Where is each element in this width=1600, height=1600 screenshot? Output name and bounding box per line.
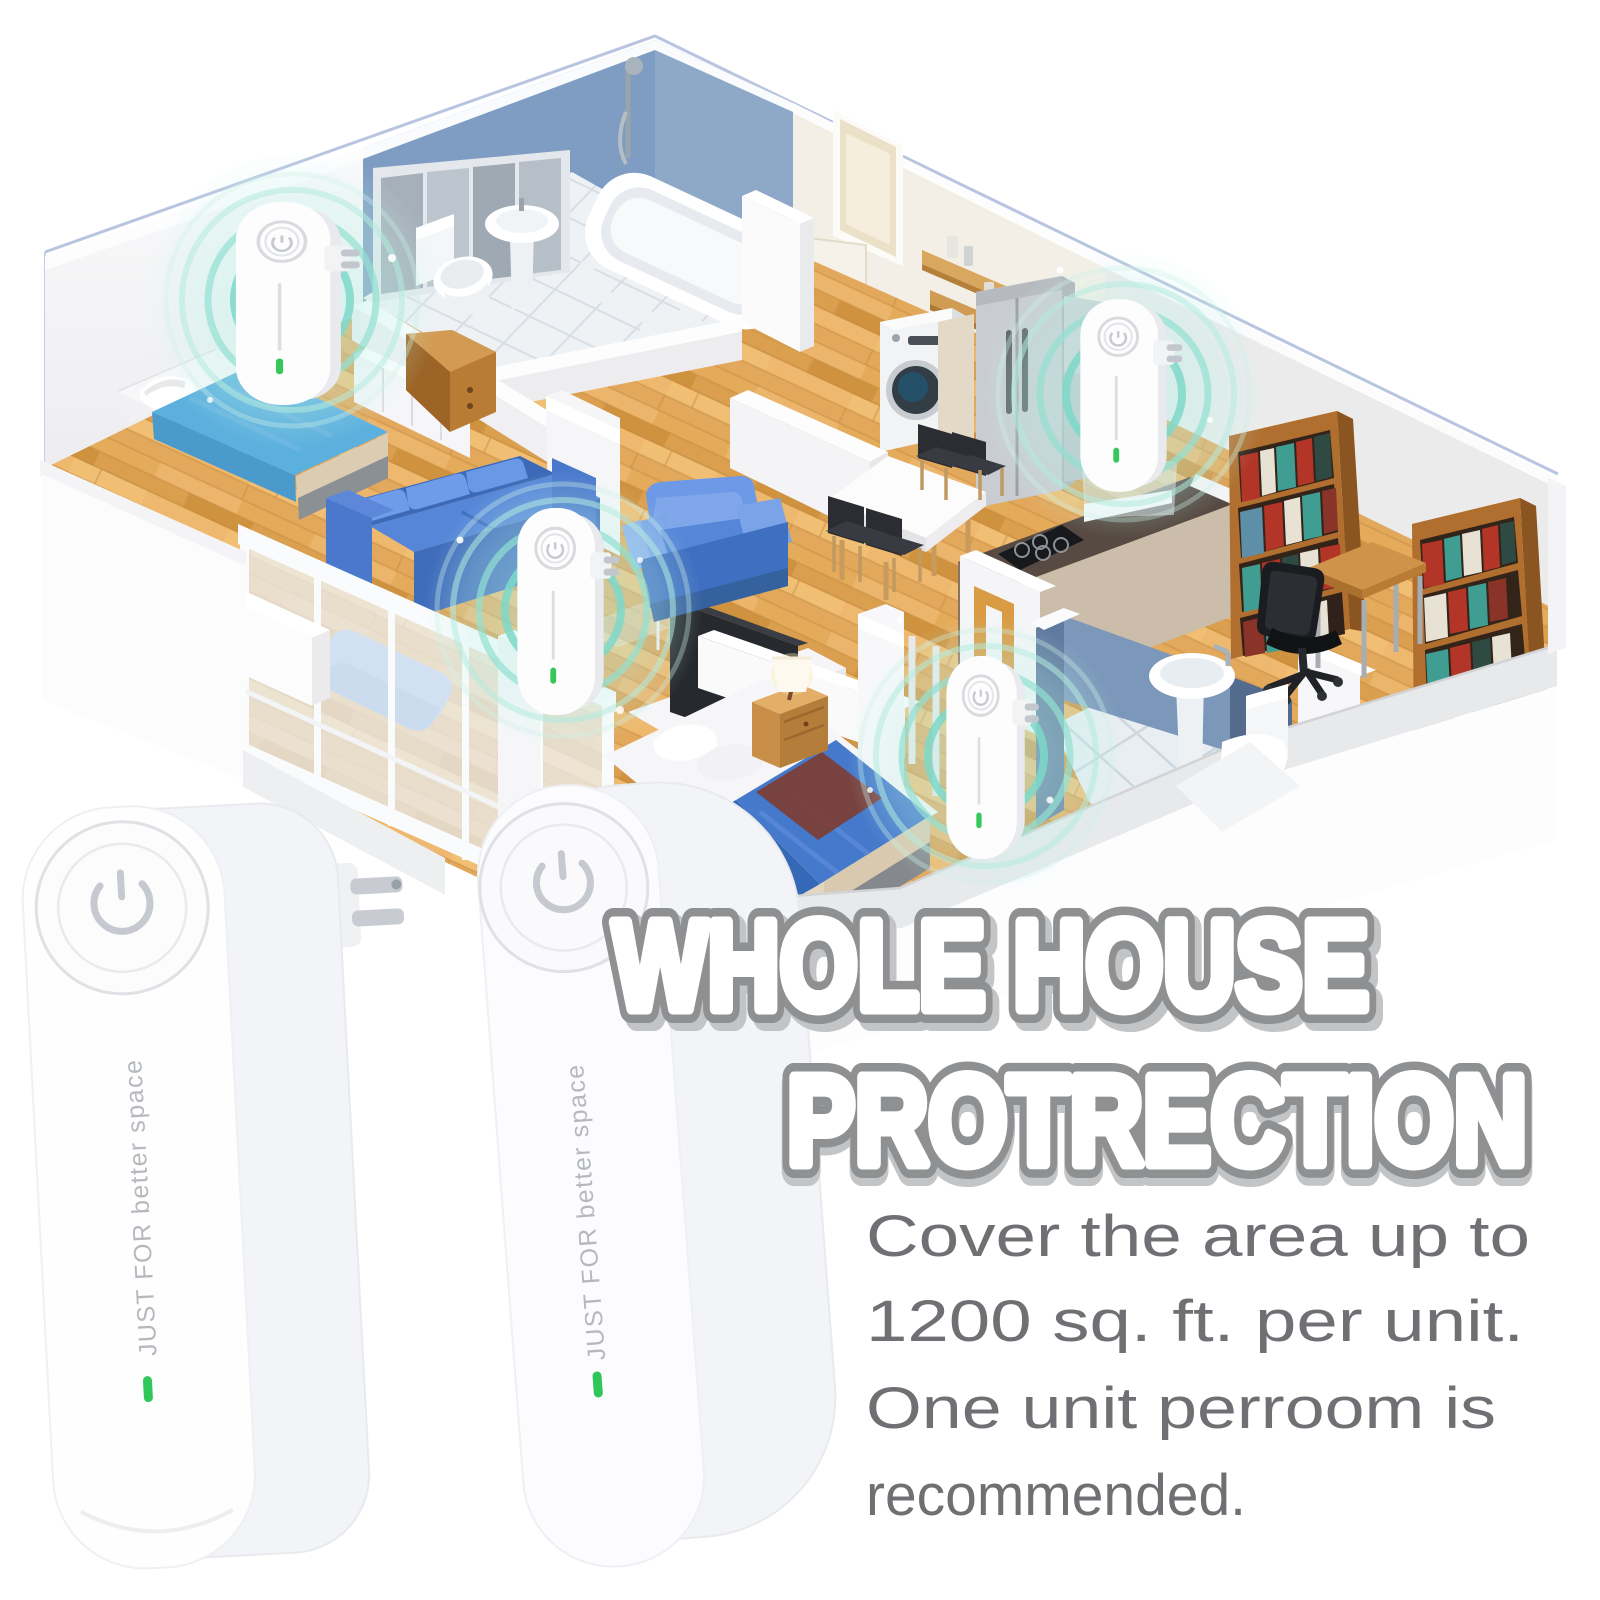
svg-text:One unit perroom is: One unit perroom is	[866, 1376, 1496, 1441]
svg-text:recommended.: recommended.	[866, 1463, 1246, 1528]
svg-text:1200 sq. ft. per unit.: 1200 sq. ft. per unit.	[866, 1289, 1524, 1354]
svg-text:PROTRECTION: PROTRECTION	[787, 1050, 1527, 1191]
svg-text:WHOLE HOUSE: WHOLE HOUSE	[613, 895, 1369, 1036]
svg-text:Cover the area up to: Cover the area up to	[866, 1204, 1530, 1269]
